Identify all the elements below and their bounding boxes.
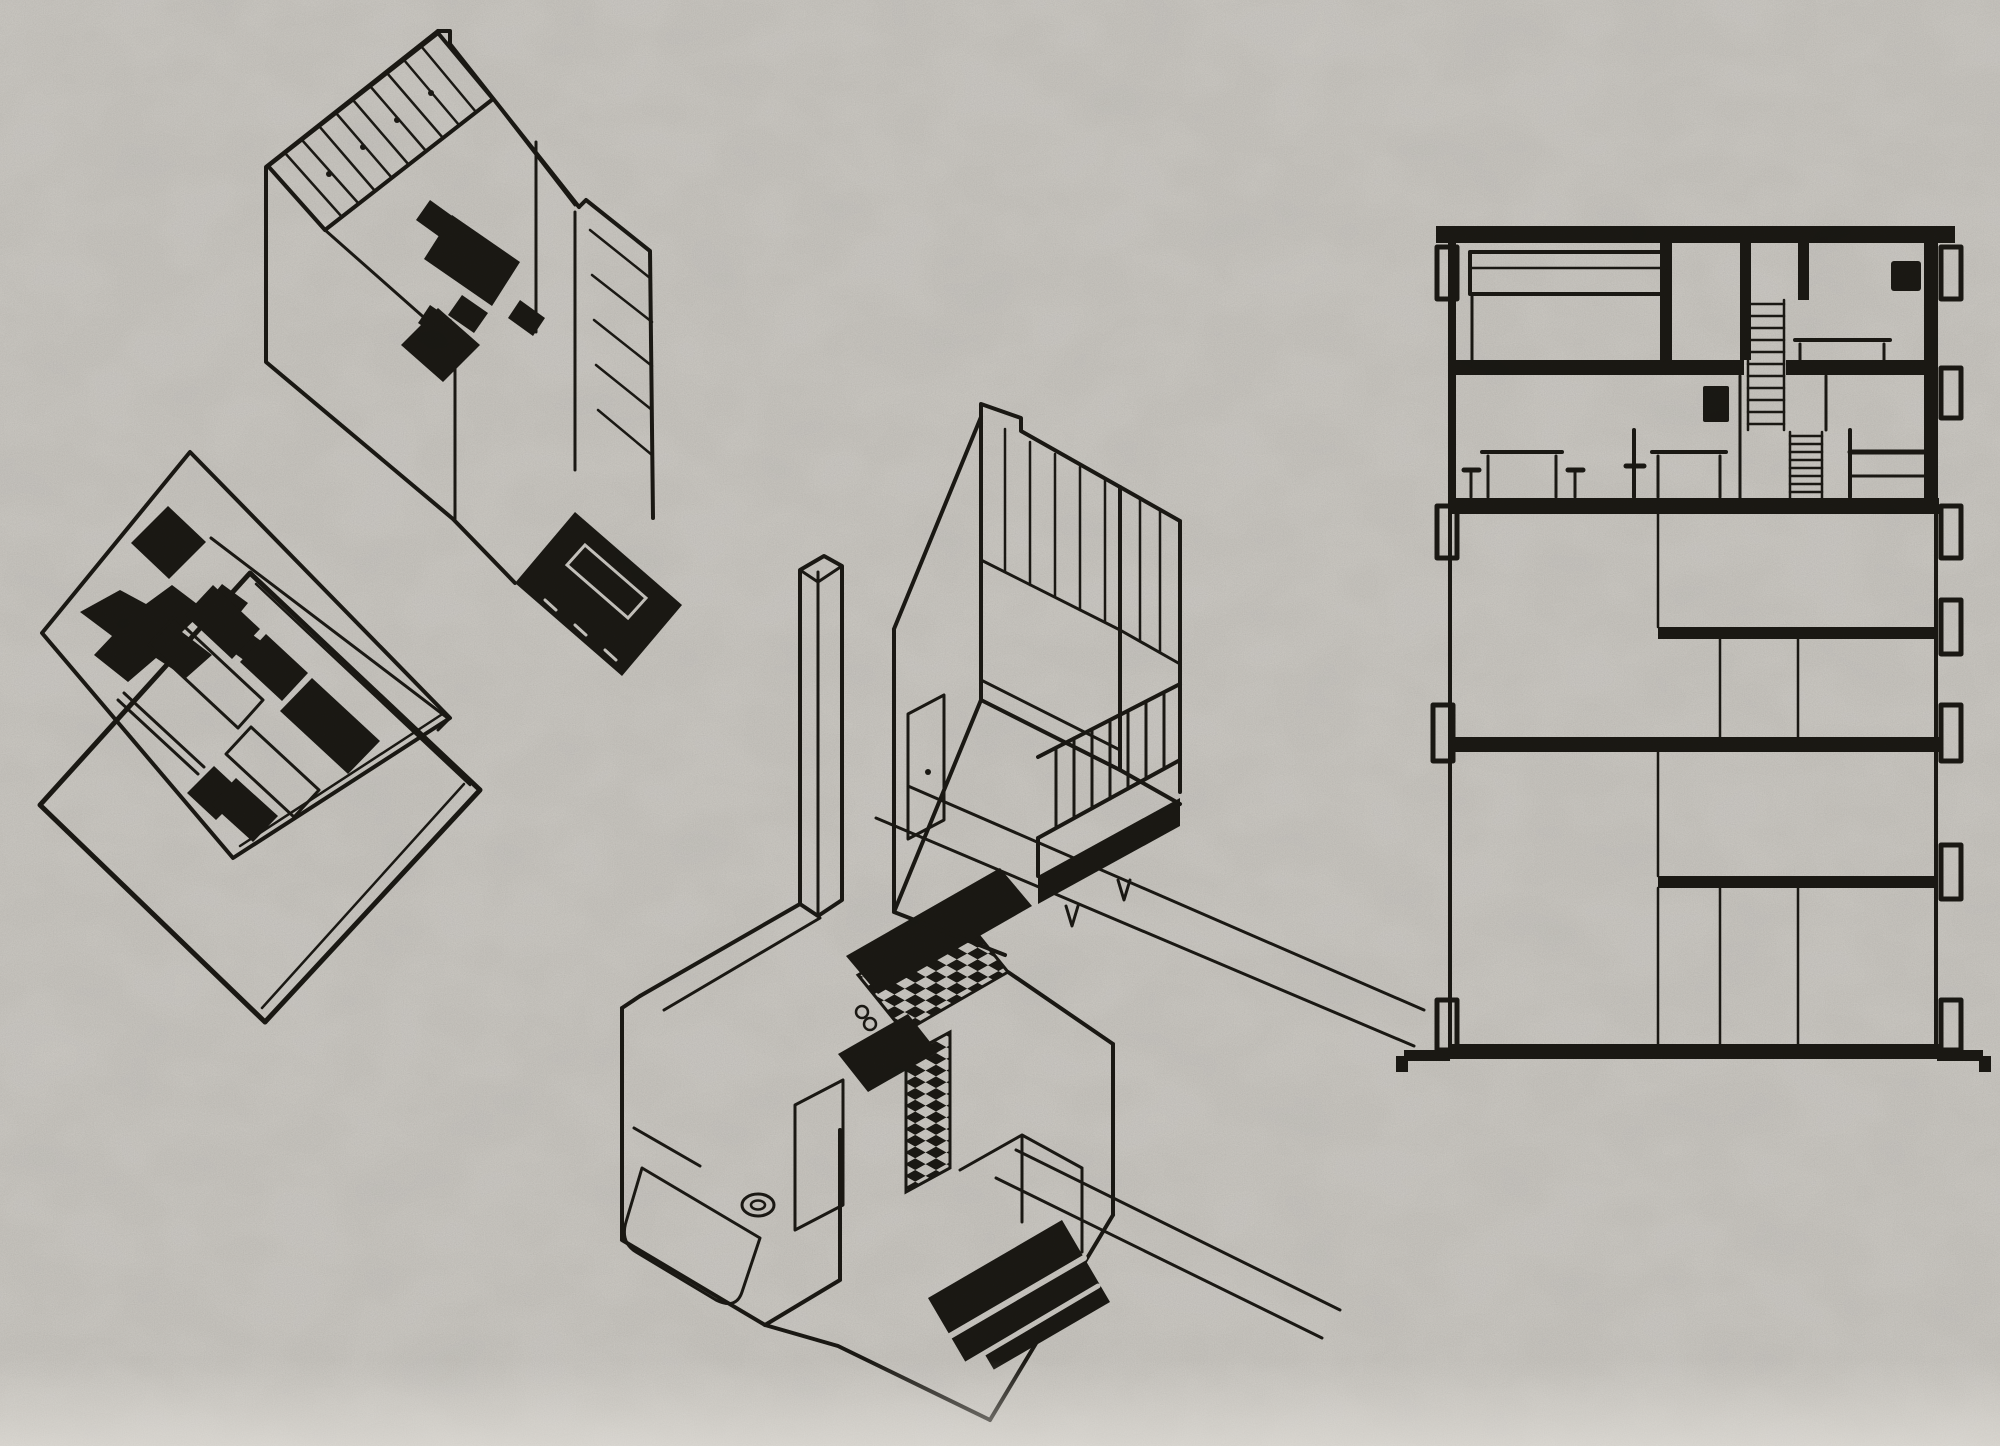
grain-overlay-fine: [0, 0, 2000, 1446]
bottom-fade: [0, 1360, 2000, 1446]
scanned-plate: [0, 0, 2000, 1446]
